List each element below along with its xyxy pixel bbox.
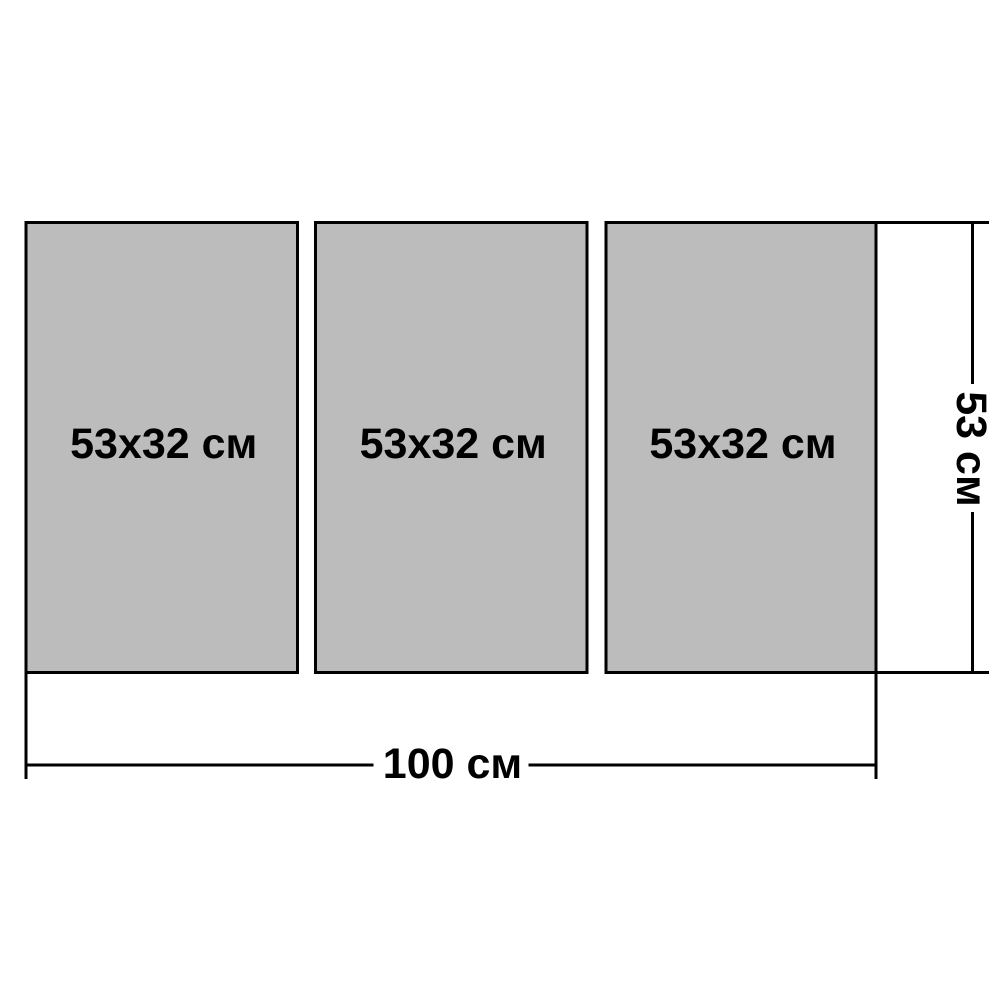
svg-text:53x32 см: 53x32 см [360, 420, 547, 468]
svg-text:53 см: 53 см [947, 391, 995, 507]
svg-text:100 см: 100 см [383, 740, 522, 788]
svg-text:53x32 см: 53x32 см [70, 420, 257, 468]
svg-text:53x32 см: 53x32 см [649, 420, 836, 468]
